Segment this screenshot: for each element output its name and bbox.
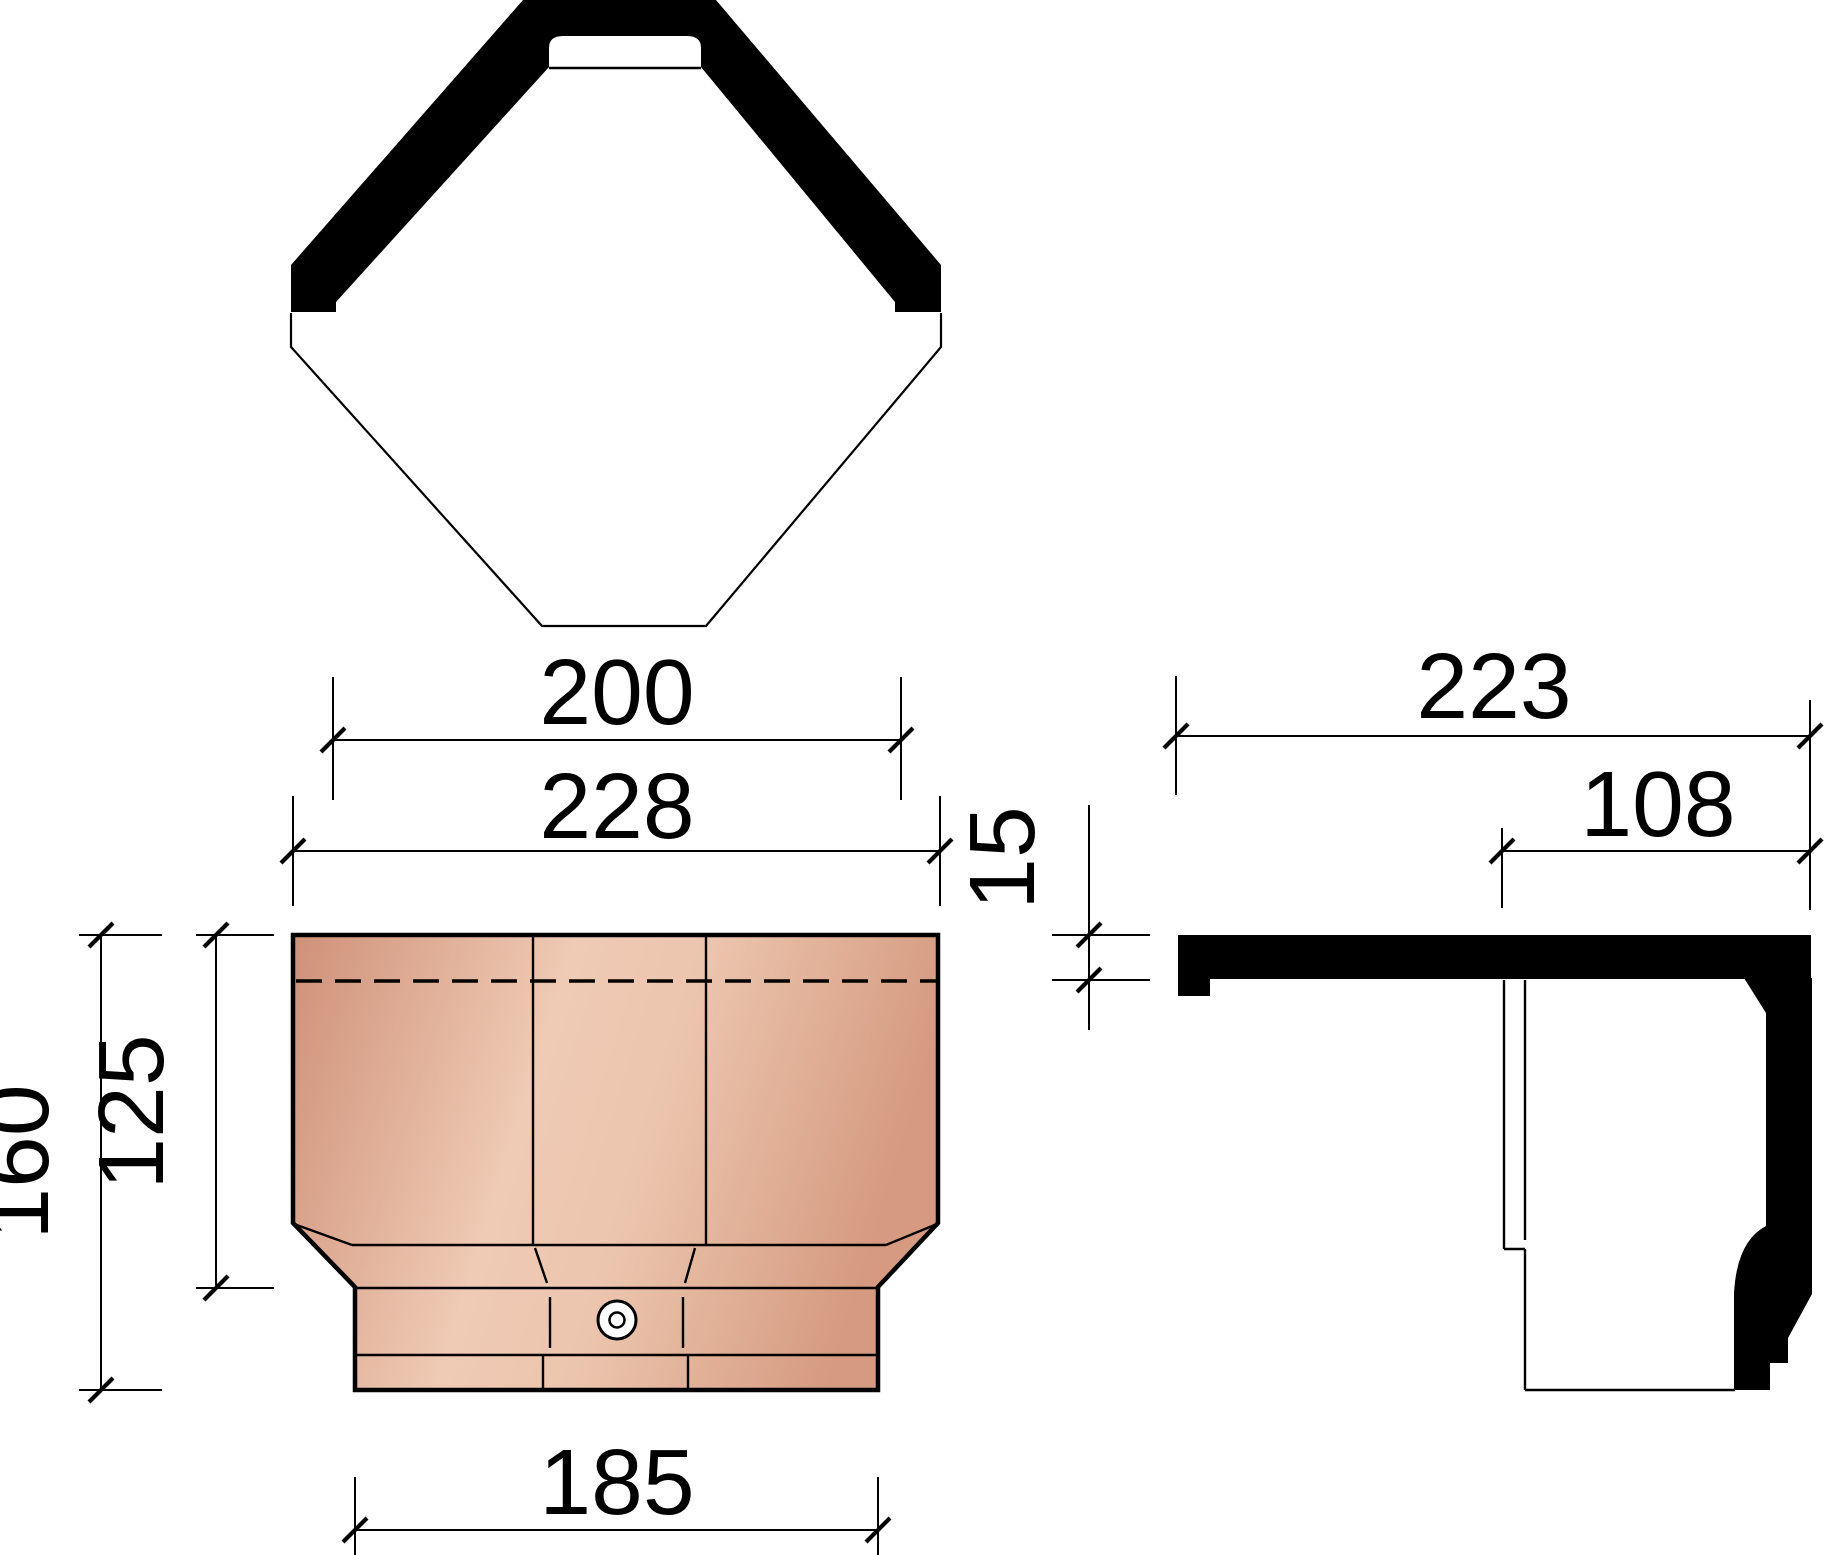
drawing-sheet: 200 228 160 125 185 [0,0,1824,1555]
dim-label-160: 160 [0,1084,68,1239]
dim-label-15: 15 [950,806,1054,909]
ridge-apex-notch [549,36,701,67]
dim-label-228: 228 [539,754,694,858]
dim-label-200: 200 [539,640,694,744]
front-view [293,935,938,1390]
nail-hole-inner [610,1313,625,1328]
dim-label-125: 125 [79,1034,183,1189]
tile-technical-drawing: 200 228 160 125 185 [0,0,1824,1555]
dim-label-108: 108 [1580,752,1735,856]
dim-label-223: 223 [1416,634,1571,738]
dim-label-185: 185 [539,1430,694,1534]
